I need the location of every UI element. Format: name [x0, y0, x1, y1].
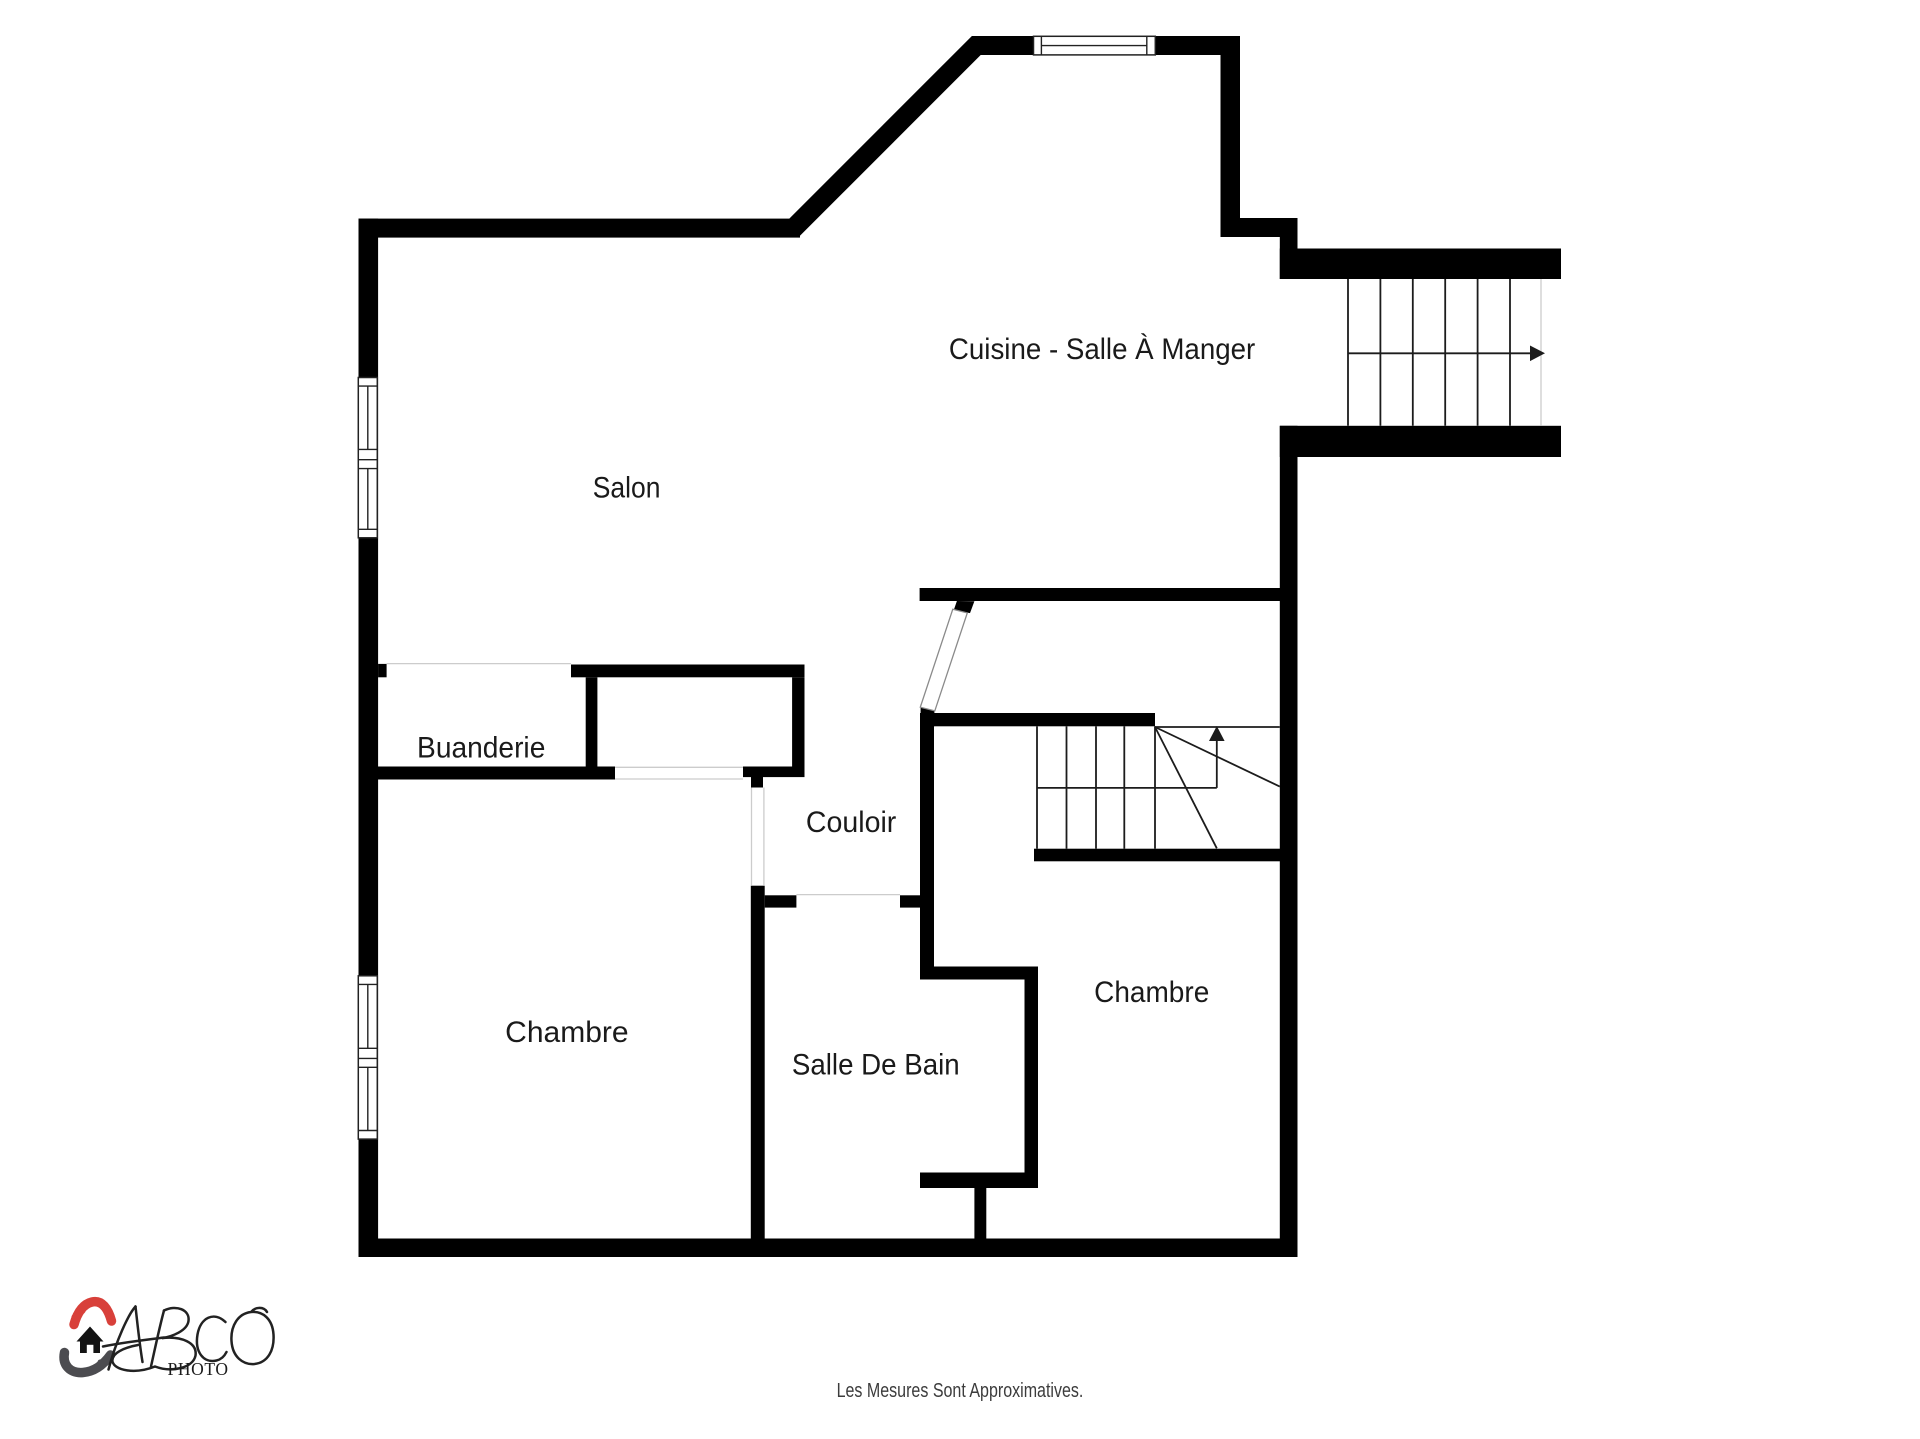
- svg-text:Buanderie: Buanderie: [417, 732, 545, 765]
- svg-text:Les Mesures Sont Approximative: Les Mesures Sont Approximatives.: [837, 1379, 1084, 1402]
- svg-text:Cuisine - Salle À Manger: Cuisine - Salle À Manger: [949, 333, 1255, 366]
- svg-text:Couloir: Couloir: [806, 806, 896, 839]
- svg-text:PHOTO: PHOTO: [168, 1359, 230, 1379]
- svg-text:Salle De Bain: Salle De Bain: [792, 1049, 960, 1082]
- svg-text:Chambre: Chambre: [505, 1016, 629, 1049]
- svg-text:Chambre: Chambre: [1094, 976, 1209, 1009]
- svg-text:Salon: Salon: [593, 472, 661, 505]
